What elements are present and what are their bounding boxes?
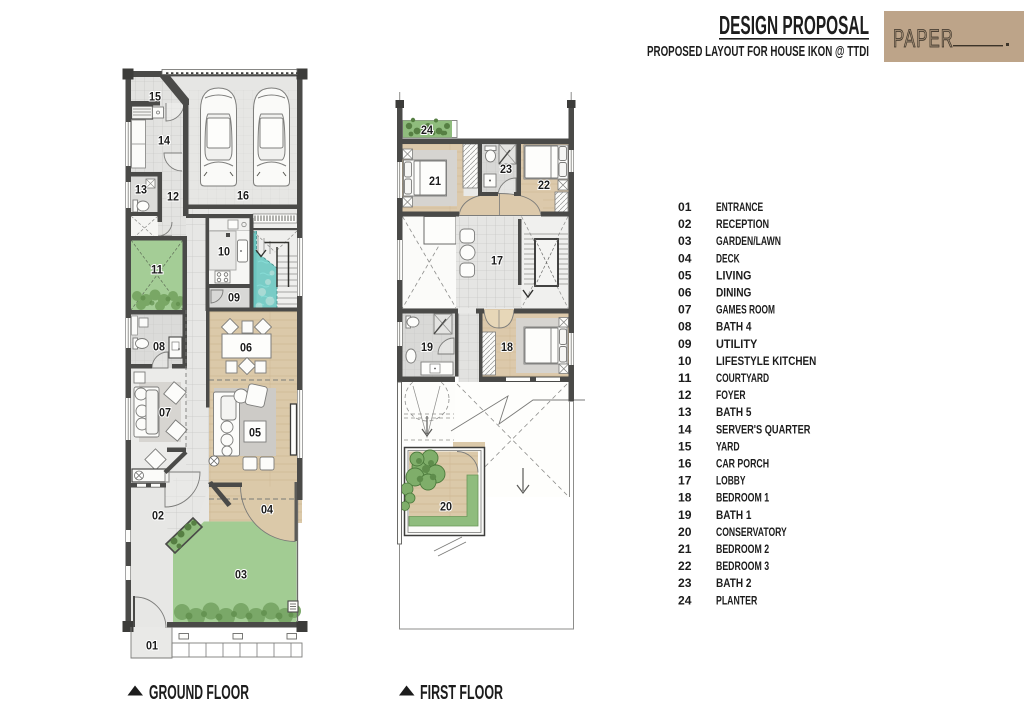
svg-text:11: 11 (678, 371, 692, 385)
svg-text:07: 07 (678, 303, 692, 317)
svg-text:COURTYARD: COURTYARD (716, 371, 769, 385)
svg-text:BEDROOM 3: BEDROOM 3 (716, 559, 769, 573)
svg-text:CONSERVATORY: CONSERVATORY (716, 525, 787, 539)
svg-text:SERVER'S QUARTER: SERVER'S QUARTER (716, 422, 811, 436)
svg-text:16: 16 (237, 189, 249, 203)
svg-text:09: 09 (678, 337, 692, 351)
svg-text:08: 08 (153, 340, 165, 354)
svg-text:LIVING: LIVING (716, 268, 751, 282)
svg-text:01: 01 (678, 200, 692, 214)
svg-text:BATH 1: BATH 1 (716, 508, 752, 522)
svg-text:03: 03 (235, 568, 247, 582)
svg-text:21: 21 (678, 542, 692, 556)
svg-text:10: 10 (218, 245, 230, 259)
svg-text:12: 12 (167, 190, 179, 204)
svg-text:GARDEN/LAWN: GARDEN/LAWN (716, 234, 781, 248)
svg-text:YARD: YARD (716, 439, 740, 453)
svg-text:BEDROOM 2: BEDROOM 2 (716, 542, 769, 556)
svg-text:03: 03 (678, 234, 692, 248)
svg-text:22: 22 (538, 178, 550, 192)
svg-text:23: 23 (678, 576, 692, 590)
svg-text:12: 12 (678, 388, 692, 402)
svg-text:13: 13 (678, 405, 692, 419)
svg-text:07: 07 (159, 406, 171, 420)
svg-text:BATH 4: BATH 4 (716, 320, 752, 334)
svg-text:DINING: DINING (716, 286, 751, 300)
svg-text:LOBBY: LOBBY (716, 474, 746, 488)
svg-text:02: 02 (678, 217, 692, 231)
svg-text:04: 04 (261, 503, 273, 517)
svg-text:24: 24 (678, 593, 692, 607)
svg-text:RECEPTION: RECEPTION (716, 217, 769, 231)
svg-text:UTILITY: UTILITY (716, 337, 757, 351)
svg-text:11: 11 (151, 263, 163, 277)
svg-text:15: 15 (149, 90, 161, 104)
svg-text:10: 10 (678, 354, 692, 368)
svg-text:18: 18 (678, 491, 692, 505)
svg-text:DECK: DECK (716, 251, 740, 265)
svg-text:BATH 5: BATH 5 (716, 405, 752, 419)
svg-text:09: 09 (228, 291, 240, 305)
svg-text:16: 16 (678, 457, 692, 471)
svg-text:23: 23 (500, 162, 512, 176)
svg-text:20: 20 (678, 525, 692, 539)
svg-text:PAPER: PAPER (893, 25, 954, 53)
svg-text:19: 19 (421, 340, 433, 354)
svg-text:18: 18 (501, 340, 513, 354)
svg-text:FOYER: FOYER (716, 388, 746, 402)
svg-text:PROPOSED LAYOUT FOR HOUSE IKON: PROPOSED LAYOUT FOR HOUSE IKON @ TTDI (647, 44, 869, 60)
svg-text:08: 08 (678, 320, 692, 334)
svg-text:GROUND FLOOR: GROUND FLOOR (149, 681, 249, 704)
svg-text:FIRST FLOOR: FIRST FLOOR (420, 681, 503, 704)
svg-text:05: 05 (249, 426, 261, 440)
svg-text:15: 15 (678, 439, 692, 453)
svg-text:06: 06 (240, 341, 252, 355)
svg-text:CAR PORCH: CAR PORCH (716, 457, 769, 471)
svg-text:20: 20 (440, 500, 452, 514)
svg-text:14: 14 (678, 422, 692, 436)
svg-text:22: 22 (678, 559, 692, 573)
svg-text:PLANTER: PLANTER (716, 593, 757, 607)
svg-text:BATH 2: BATH 2 (716, 576, 752, 590)
svg-text:04: 04 (678, 251, 692, 265)
svg-text:21: 21 (429, 174, 441, 188)
svg-text:24: 24 (421, 123, 433, 137)
svg-text:17: 17 (678, 474, 692, 488)
svg-text:19: 19 (678, 508, 692, 522)
svg-text:17: 17 (491, 254, 503, 268)
svg-text:14: 14 (158, 134, 170, 148)
svg-text:05: 05 (678, 268, 692, 282)
svg-text:ENTRANCE: ENTRANCE (716, 200, 763, 214)
svg-text:BEDROOM 1: BEDROOM 1 (716, 491, 769, 505)
svg-text:LIFESTYLE KITCHEN: LIFESTYLE KITCHEN (716, 354, 816, 368)
svg-text:02: 02 (152, 509, 164, 523)
svg-text:13: 13 (135, 183, 147, 197)
svg-text:GAMES ROOM: GAMES ROOM (716, 303, 775, 317)
svg-text:06: 06 (678, 286, 692, 300)
svg-text:01: 01 (146, 639, 158, 653)
svg-text:DESIGN PROPOSAL: DESIGN PROPOSAL (719, 10, 869, 40)
